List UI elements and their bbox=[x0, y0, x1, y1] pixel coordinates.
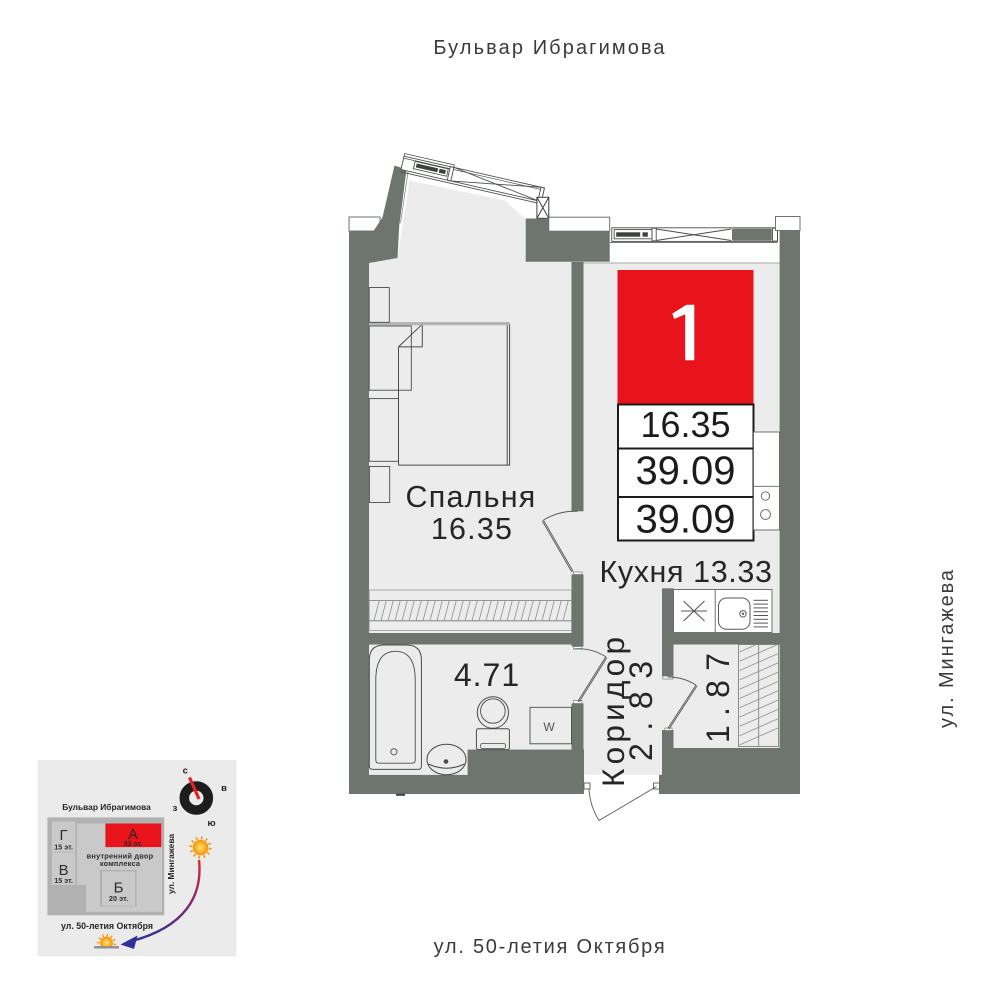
svg-text:в: в bbox=[221, 783, 227, 794]
svg-text:ю: ю bbox=[207, 818, 215, 829]
svg-text:Бульвар Ибрагимова: Бульвар Ибрагимова bbox=[433, 37, 666, 59]
svg-text:ул. Мингажева: ул. Мингажева bbox=[936, 568, 958, 728]
svg-text:16.35: 16.35 bbox=[640, 404, 730, 445]
svg-text:з: з bbox=[173, 803, 178, 814]
svg-text:33 эт.: 33 эт. bbox=[124, 839, 143, 848]
svg-text:комплекса: комплекса bbox=[100, 859, 141, 868]
svg-text:Бульвар Ибрагимова: Бульвар Ибрагимова bbox=[62, 802, 151, 812]
svg-text:Г: Г bbox=[60, 827, 68, 844]
svg-text:39.09: 39.09 bbox=[635, 498, 735, 542]
svg-text:4.71: 4.71 bbox=[454, 657, 520, 693]
svg-text:15 эт.: 15 эт. bbox=[54, 876, 73, 885]
svg-text:с: с bbox=[183, 766, 188, 777]
svg-text:Кухня 13.33: Кухня 13.33 bbox=[599, 555, 772, 589]
svg-text:16.35: 16.35 bbox=[431, 512, 513, 546]
svg-text:W: W bbox=[543, 720, 555, 734]
svg-text:ул. 50-летия Октября: ул. 50-летия Октября bbox=[61, 921, 153, 931]
svg-text:ул. Мингажева: ул. Мингажева bbox=[166, 834, 176, 894]
svg-text:Спальня: Спальня bbox=[406, 480, 537, 514]
svg-text:20 эт.: 20 эт. bbox=[109, 894, 128, 903]
svg-text:15 эт.: 15 эт. bbox=[54, 843, 73, 852]
svg-text:1.87: 1.87 bbox=[700, 653, 736, 743]
svg-text:ул. 50-летия Октября: ул. 50-летия Октября bbox=[434, 936, 667, 958]
svg-text:Коридор: Коридор bbox=[595, 637, 631, 787]
svg-text:39.09: 39.09 bbox=[635, 449, 735, 493]
